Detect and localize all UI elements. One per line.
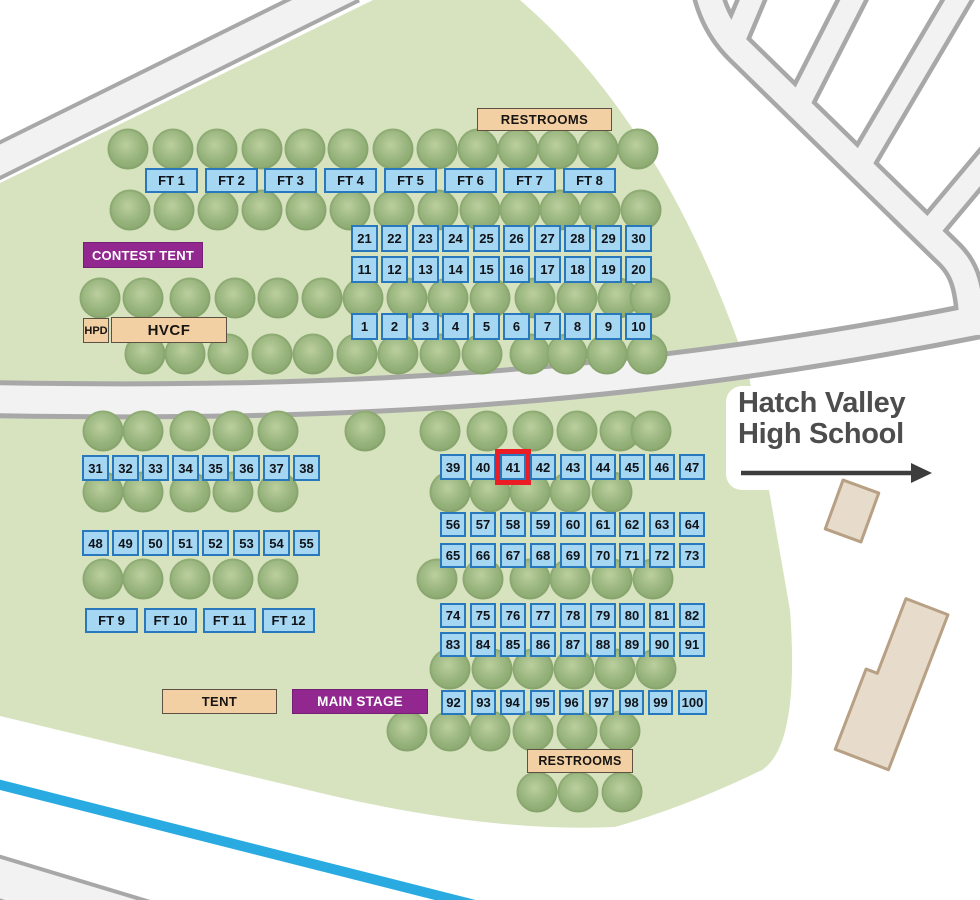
tree-icon bbox=[557, 711, 598, 752]
tree-icon bbox=[258, 411, 299, 452]
tree-icon bbox=[213, 559, 254, 600]
booth-9: 9 bbox=[595, 313, 622, 340]
booth-81: 81 bbox=[649, 603, 675, 628]
booth-73: 73 bbox=[679, 543, 705, 568]
tree-icon bbox=[215, 278, 256, 319]
food-tent-ft7: FT 7 bbox=[503, 168, 556, 193]
school-label-line2: High School bbox=[738, 419, 958, 450]
tree-icon bbox=[470, 711, 511, 752]
food-tent-ft12: FT 12 bbox=[262, 608, 315, 633]
tree-icon bbox=[83, 559, 124, 600]
booth-55: 55 bbox=[293, 530, 320, 556]
building-large bbox=[835, 594, 948, 769]
booth-40: 40 bbox=[470, 454, 496, 480]
tree-icon bbox=[558, 772, 599, 813]
booth-14: 14 bbox=[442, 256, 469, 283]
restrooms-bottom-sign: RESTROOMS bbox=[527, 749, 633, 773]
hpd-sign: HPD bbox=[83, 318, 109, 343]
tree-icon bbox=[417, 129, 458, 170]
booth-7: 7 bbox=[534, 313, 561, 340]
food-tent-ft4: FT 4 bbox=[324, 168, 377, 193]
booth-41-highlighted: 41 bbox=[500, 454, 526, 480]
booth-44: 44 bbox=[590, 454, 616, 480]
tree-icon bbox=[242, 129, 283, 170]
booth-86: 86 bbox=[530, 632, 556, 657]
booth-64: 64 bbox=[679, 512, 705, 537]
tent-sign: TENT bbox=[162, 689, 277, 714]
tree-icon bbox=[578, 129, 619, 170]
tree-icon bbox=[123, 411, 164, 452]
booth-58: 58 bbox=[500, 512, 526, 537]
booth-53: 53 bbox=[233, 530, 260, 556]
booth-38: 38 bbox=[293, 455, 320, 481]
booth-82: 82 bbox=[679, 603, 705, 628]
booth-76: 76 bbox=[500, 603, 526, 628]
tree-icon bbox=[123, 278, 164, 319]
booth-28: 28 bbox=[564, 225, 591, 252]
tree-icon bbox=[513, 411, 554, 452]
booth-6: 6 bbox=[503, 313, 530, 340]
tree-icon bbox=[170, 278, 211, 319]
booth-67: 67 bbox=[500, 543, 526, 568]
booth-46: 46 bbox=[649, 454, 675, 480]
booth-97: 97 bbox=[589, 690, 614, 715]
booth-4: 4 bbox=[442, 313, 469, 340]
booth-77: 77 bbox=[530, 603, 556, 628]
booth-33: 33 bbox=[142, 455, 169, 481]
booth-66: 66 bbox=[470, 543, 496, 568]
tree-icon bbox=[123, 559, 164, 600]
tree-icon bbox=[345, 411, 386, 452]
booth-17: 17 bbox=[534, 256, 561, 283]
tree-icon bbox=[538, 129, 579, 170]
booth-8: 8 bbox=[564, 313, 591, 340]
booth-99: 99 bbox=[648, 690, 673, 715]
booth-72: 72 bbox=[649, 543, 675, 568]
booth-80: 80 bbox=[619, 603, 645, 628]
booth-49: 49 bbox=[112, 530, 139, 556]
booth-37: 37 bbox=[263, 455, 290, 481]
event-site-map: 2122232425262728293011121314151617181920… bbox=[0, 0, 980, 900]
booth-71: 71 bbox=[619, 543, 645, 568]
booth-60: 60 bbox=[560, 512, 586, 537]
booth-65: 65 bbox=[440, 543, 466, 568]
tree-icon bbox=[420, 411, 461, 452]
tree-icon bbox=[467, 411, 508, 452]
booth-57: 57 bbox=[470, 512, 496, 537]
booth-32: 32 bbox=[112, 455, 139, 481]
booth-48: 48 bbox=[82, 530, 109, 556]
booth-68: 68 bbox=[530, 543, 556, 568]
booth-5: 5 bbox=[473, 313, 500, 340]
tree-icon bbox=[258, 559, 299, 600]
booth-18: 18 bbox=[564, 256, 591, 283]
food-tent-ft9: FT 9 bbox=[85, 608, 138, 633]
booth-59: 59 bbox=[530, 512, 556, 537]
tree-icon bbox=[302, 278, 343, 319]
tree-icon bbox=[170, 559, 211, 600]
booth-1: 1 bbox=[351, 313, 378, 340]
tree-icon bbox=[328, 129, 369, 170]
booth-10: 10 bbox=[625, 313, 652, 340]
food-tent-ft2: FT 2 bbox=[205, 168, 258, 193]
booth-93: 93 bbox=[471, 690, 496, 715]
tree-icon bbox=[83, 411, 124, 452]
main-stage-sign: MAIN STAGE bbox=[292, 689, 428, 714]
tree-icon bbox=[197, 129, 238, 170]
booth-62: 62 bbox=[619, 512, 645, 537]
booth-34: 34 bbox=[172, 455, 199, 481]
booth-15: 15 bbox=[473, 256, 500, 283]
tree-icon bbox=[430, 711, 471, 752]
tree-icon bbox=[373, 129, 414, 170]
tree-icon bbox=[458, 129, 499, 170]
tree-icon bbox=[154, 190, 195, 231]
tree-icon bbox=[557, 411, 598, 452]
booth-31: 31 bbox=[82, 455, 109, 481]
booth-84: 84 bbox=[470, 632, 496, 657]
booth-78: 78 bbox=[560, 603, 586, 628]
booth-24: 24 bbox=[442, 225, 469, 252]
tree-icon bbox=[618, 129, 659, 170]
school-label: Hatch Valley High School bbox=[738, 388, 958, 450]
booth-75: 75 bbox=[470, 603, 496, 628]
tree-icon bbox=[80, 278, 121, 319]
food-tent-ft8: FT 8 bbox=[563, 168, 616, 193]
booth-94: 94 bbox=[500, 690, 525, 715]
food-tent-ft3: FT 3 bbox=[264, 168, 317, 193]
booth-25: 25 bbox=[473, 225, 500, 252]
booth-85: 85 bbox=[500, 632, 526, 657]
hvcf-sign: HVCF bbox=[111, 317, 227, 343]
tree-icon bbox=[293, 334, 334, 375]
booth-91: 91 bbox=[679, 632, 705, 657]
tree-icon bbox=[602, 772, 643, 813]
booth-100: 100 bbox=[678, 690, 707, 715]
tree-icon bbox=[517, 772, 558, 813]
booth-16: 16 bbox=[503, 256, 530, 283]
tree-icon bbox=[242, 190, 283, 231]
tree-icon bbox=[286, 190, 327, 231]
booth-95: 95 bbox=[530, 690, 555, 715]
booth-20: 20 bbox=[625, 256, 652, 283]
booth-89: 89 bbox=[619, 632, 645, 657]
school-buildings bbox=[825, 480, 948, 770]
booth-23: 23 bbox=[412, 225, 439, 252]
food-tent-ft6: FT 6 bbox=[444, 168, 497, 193]
booth-19: 19 bbox=[595, 256, 622, 283]
tree-icon bbox=[513, 711, 554, 752]
booth-83: 83 bbox=[440, 632, 466, 657]
booth-63: 63 bbox=[649, 512, 675, 537]
booth-26: 26 bbox=[503, 225, 530, 252]
tree-icon bbox=[387, 711, 428, 752]
tree-icon bbox=[631, 411, 672, 452]
tree-icon bbox=[252, 334, 293, 375]
booth-69: 69 bbox=[560, 543, 586, 568]
booth-70: 70 bbox=[590, 543, 616, 568]
food-tent-ft10: FT 10 bbox=[144, 608, 197, 633]
booth-61: 61 bbox=[590, 512, 616, 537]
booth-79: 79 bbox=[590, 603, 616, 628]
booth-87: 87 bbox=[560, 632, 586, 657]
booth-51: 51 bbox=[172, 530, 199, 556]
tree-icon bbox=[110, 190, 151, 231]
booth-88: 88 bbox=[590, 632, 616, 657]
booth-54: 54 bbox=[263, 530, 290, 556]
tree-icon bbox=[198, 190, 239, 231]
booth-52: 52 bbox=[202, 530, 229, 556]
booth-2: 2 bbox=[381, 313, 408, 340]
tree-icon bbox=[213, 411, 254, 452]
booth-50: 50 bbox=[142, 530, 169, 556]
food-tent-ft11: FT 11 bbox=[203, 608, 256, 633]
booth-29: 29 bbox=[595, 225, 622, 252]
booth-74: 74 bbox=[440, 603, 466, 628]
tree-icon bbox=[498, 129, 539, 170]
booth-45: 45 bbox=[619, 454, 645, 480]
booth-98: 98 bbox=[619, 690, 644, 715]
tree-icon bbox=[600, 711, 641, 752]
booth-90: 90 bbox=[649, 632, 675, 657]
booth-21: 21 bbox=[351, 225, 378, 252]
booth-22: 22 bbox=[381, 225, 408, 252]
booth-96: 96 bbox=[559, 690, 584, 715]
booth-47: 47 bbox=[679, 454, 705, 480]
tree-icon bbox=[170, 411, 211, 452]
tree-icon bbox=[285, 129, 326, 170]
food-tent-ft5: FT 5 bbox=[384, 168, 437, 193]
booth-36: 36 bbox=[233, 455, 260, 481]
booth-27: 27 bbox=[534, 225, 561, 252]
booth-11: 11 bbox=[351, 256, 378, 283]
booth-12: 12 bbox=[381, 256, 408, 283]
contest-tent-sign: CONTEST TENT bbox=[83, 242, 203, 268]
booth-39: 39 bbox=[440, 454, 466, 480]
restrooms-top-sign: RESTROOMS bbox=[477, 108, 612, 131]
tree-icon bbox=[108, 129, 149, 170]
booth-92: 92 bbox=[441, 690, 466, 715]
food-tent-ft1: FT 1 bbox=[145, 168, 198, 193]
booth-42: 42 bbox=[530, 454, 556, 480]
tree-icon bbox=[153, 129, 194, 170]
booth-43: 43 bbox=[560, 454, 586, 480]
school-label-line1: Hatch Valley bbox=[738, 388, 958, 419]
tree-icon bbox=[258, 278, 299, 319]
booth-13: 13 bbox=[412, 256, 439, 283]
booth-30: 30 bbox=[625, 225, 652, 252]
booth-56: 56 bbox=[440, 512, 466, 537]
booth-35: 35 bbox=[202, 455, 229, 481]
booth-3: 3 bbox=[412, 313, 439, 340]
